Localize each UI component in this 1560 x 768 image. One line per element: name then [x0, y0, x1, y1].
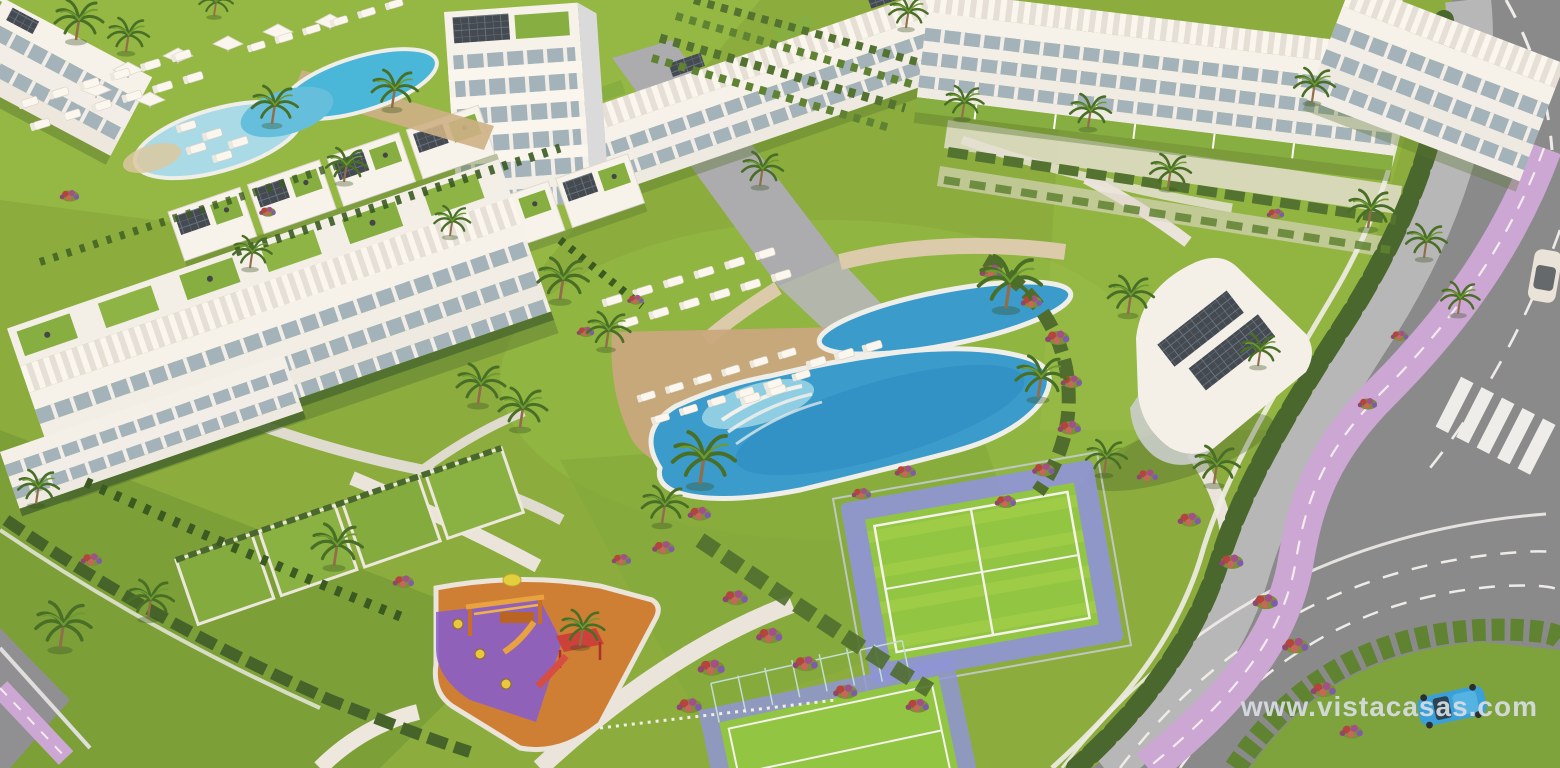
warm-light-overlay: [0, 0, 1560, 768]
watermark-text: www.vistacasas.com: [1240, 691, 1538, 722]
render-canvas: www.vistacasas.com: [0, 0, 1560, 768]
aerial-render: www.vistacasas.com: [0, 0, 1560, 768]
